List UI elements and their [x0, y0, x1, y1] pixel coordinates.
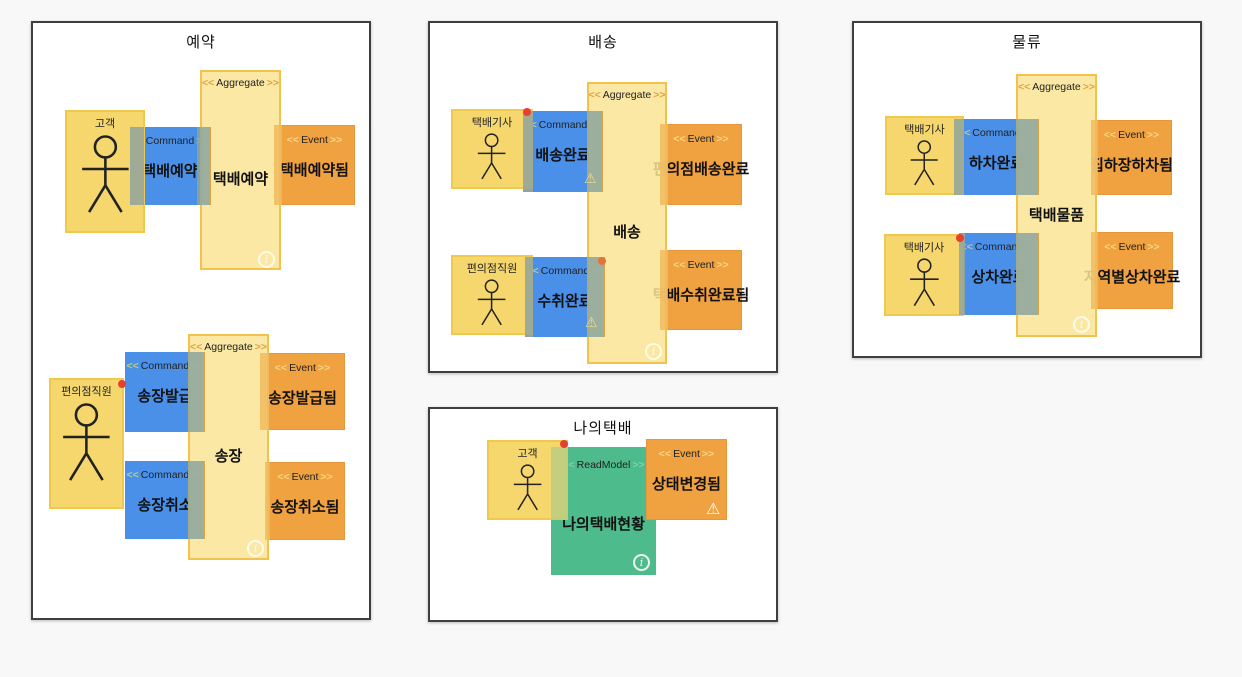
event-sticker[interactable]: <<Event>> 집하장하차됨 — [1091, 120, 1172, 195]
info-icon[interactable]: i — [633, 554, 650, 571]
event-label: 집하장하차됨 — [1090, 154, 1173, 175]
sticker-type-header: <<ReadModel>> — [560, 459, 646, 471]
event-label: 송장취소됨 — [270, 496, 339, 517]
person-icon — [473, 278, 510, 329]
context-title: 나의택배 — [430, 417, 776, 438]
bounded-context-logistics[interactable]: 물류 <<Command>> 하차완료 <<Command>> 상차완료 <<E… — [852, 21, 1202, 358]
command-label: 배송완료 — [535, 144, 590, 165]
sticker-type-header: <<Aggregate>> — [1016, 81, 1097, 93]
aggregate-label: 송장 — [215, 445, 243, 466]
event-label: 상태변경됨 — [652, 473, 721, 494]
sticker-type-header: <<Aggregate>> — [200, 77, 281, 89]
actor-sticker[interactable]: 편의점직원 — [49, 378, 124, 509]
actor-label: 택배기사 — [472, 114, 512, 130]
event-label: 지역별상차완료 — [1084, 266, 1181, 287]
event-sticker[interactable]: <<Event>> 지역별상차완료 — [1091, 232, 1173, 309]
actor-label: 택배기사 — [904, 121, 944, 137]
overlap-strip — [525, 257, 533, 337]
aggregate-sticker[interactable]: <<Aggregate>> 택배예약 — [200, 70, 281, 270]
overlap-strip — [523, 111, 533, 192]
event-label: 택배예약됨 — [280, 159, 349, 180]
context-title: 예약 — [33, 31, 369, 52]
event-sticker[interactable]: <<Event>> 송장취소됨 — [265, 462, 345, 540]
actor-sticker[interactable]: 택배기사 — [884, 234, 964, 316]
overlap-strip — [197, 127, 211, 205]
sticker-type-header: <<Event>> — [657, 448, 716, 460]
command-label: 송장발급 — [137, 385, 192, 406]
info-icon[interactable]: i — [258, 251, 275, 268]
sticker-type-header: <<Event>> — [1102, 241, 1161, 253]
overlap-strip — [265, 462, 270, 540]
context-title: 물류 — [854, 31, 1200, 52]
sticker-type-header: <<Event>> — [273, 362, 332, 374]
overlap-strip — [959, 233, 965, 315]
overlap-strip — [260, 353, 269, 430]
readmodel-label: 나의택배현황 — [562, 513, 645, 534]
sticker-type-header: <<Event>> — [671, 133, 730, 145]
event-sticker[interactable]: <<Event>> 편의점배송완료 — [660, 124, 742, 205]
alert-dot — [598, 257, 606, 265]
sticker-type-header: <<Event>> — [1102, 129, 1161, 141]
aggregate-label: 배송 — [613, 221, 641, 242]
overlap-strip — [1091, 232, 1098, 309]
actor-label: 택배기사 — [904, 239, 944, 255]
command-label: 송장취소 — [137, 494, 192, 515]
warning-icon: ⚠ — [585, 316, 598, 330]
overlap-strip — [188, 461, 205, 539]
info-icon[interactable]: i — [645, 343, 662, 360]
overlap-strip — [660, 250, 668, 330]
sticker-type-header: <<Event>> — [671, 259, 730, 271]
overlap-strip — [188, 352, 205, 432]
overlap-strip — [1016, 233, 1039, 315]
actor-label: 편의점직원 — [467, 260, 518, 276]
actor-label: 편의점직원 — [61, 383, 112, 399]
warning-icon: ⚠ — [584, 172, 597, 186]
command-label: 택배예약 — [142, 160, 197, 181]
person-icon — [906, 139, 942, 189]
event-sticker[interactable]: <<Event>> 택배예약됨 — [274, 125, 355, 205]
overlap-strip — [954, 119, 964, 195]
info-icon[interactable]: i — [1073, 316, 1090, 333]
actor-sticker[interactable]: 편의점직원 — [451, 255, 533, 335]
sticker-type-header: <<Event>> — [275, 471, 334, 483]
event-sticker[interactable]: <<Event>> 택배수취완료됨 — [660, 250, 742, 330]
actor-sticker[interactable]: 택배기사 — [885, 116, 964, 195]
overlap-strip — [1091, 120, 1098, 195]
event-storming-canvas: 예약 <<Command>> 택배예약 <<Command>> 송장발급 <<C… — [0, 0, 1242, 677]
person-icon — [473, 132, 510, 183]
aggregate-label: 택배예약 — [213, 168, 268, 189]
person-icon — [905, 257, 944, 310]
sticker-type-header: <<Aggregate>> — [587, 89, 668, 101]
actor-label: 고객 — [95, 115, 115, 131]
person-icon — [509, 463, 546, 514]
actor-sticker[interactable]: 택배기사 — [451, 109, 533, 189]
overlap-strip — [660, 124, 668, 205]
context-title: 배송 — [430, 31, 776, 52]
aggregate-label: 택배물품 — [1029, 204, 1084, 225]
command-label: 수취완료 — [537, 290, 592, 311]
alert-dot — [560, 440, 568, 448]
sticker-type-header: <<Event>> — [285, 134, 344, 146]
alert-dot — [956, 234, 964, 242]
info-icon[interactable]: i — [247, 540, 264, 557]
actor-label: 고객 — [517, 445, 537, 461]
bounded-context-delivery[interactable]: 배송 <<Command>> 배송완료 <<Command>> 수취완료 <<E… — [428, 21, 778, 373]
person-icon — [55, 401, 118, 487]
overlap-strip — [1016, 119, 1039, 195]
event-label: 송장발급됨 — [268, 387, 337, 408]
overlap-strip — [551, 447, 568, 520]
bounded-context-my-delivery[interactable]: 나의택배 <<ReadModel>> 나의택배현황 <<Event>> 상태변경… — [428, 407, 778, 622]
alert-dot — [523, 108, 531, 116]
event-sticker[interactable]: <<Event>> 송장발급됨 — [260, 353, 345, 430]
bounded-context-reservation[interactable]: 예약 <<Command>> 택배예약 <<Command>> 송장발급 <<C… — [31, 21, 371, 620]
overlap-strip — [274, 125, 282, 205]
warning-icon: ⚠ — [706, 501, 720, 517]
overlap-strip — [130, 127, 144, 205]
person-icon — [74, 133, 137, 219]
alert-dot — [118, 380, 126, 388]
